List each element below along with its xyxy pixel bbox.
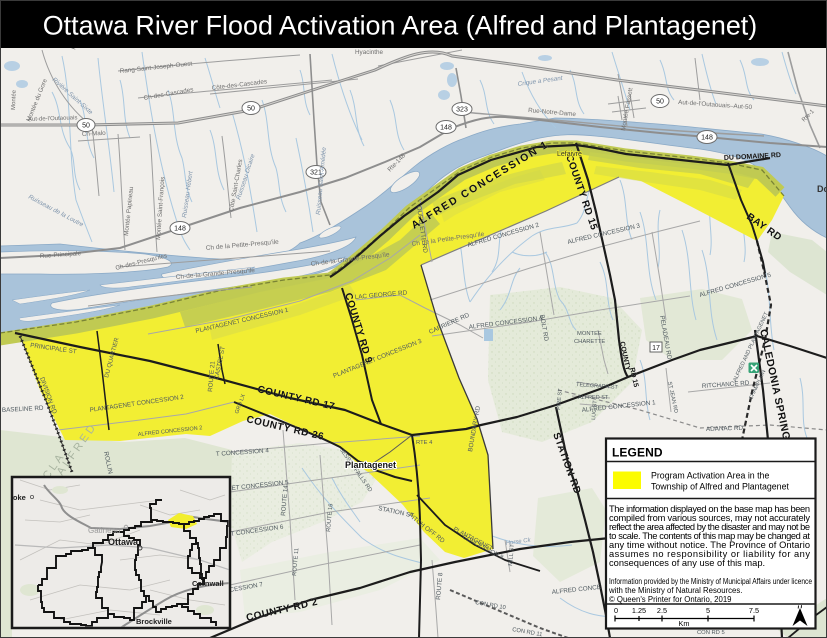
- svg-text:Brockville: Brockville: [136, 617, 172, 626]
- svg-text:Montée: Montée: [11, 89, 18, 110]
- svg-text:Ch-Malo: Ch-Malo: [82, 130, 107, 138]
- svg-text:Ottawa: Ottawa: [108, 537, 139, 547]
- svg-text:5: 5: [706, 606, 710, 615]
- svg-text:with the Ministry of Natural R: with the Ministry of Natural Resources.: [608, 586, 742, 595]
- svg-text:LEGEND: LEGEND: [612, 446, 663, 460]
- svg-text:148: 148: [174, 226, 186, 233]
- svg-text:consequences of any use of thi: consequences of any use of this map.: [609, 558, 765, 568]
- svg-text:ADANAC RD: ADANAC RD: [706, 425, 744, 433]
- svg-text:323: 323: [456, 107, 468, 114]
- svg-text:7.5: 7.5: [749, 606, 759, 615]
- svg-text:© Queen's Printer for Ontario,: © Queen's Printer for Ontario, 2019: [609, 595, 732, 604]
- svg-text:50: 50: [82, 123, 90, 130]
- svg-text:50: 50: [247, 106, 255, 113]
- svg-text:1.25: 1.25: [632, 606, 646, 615]
- svg-text:ALFRED ST: ALFRED ST: [578, 395, 609, 401]
- svg-text:CON RD 5: CON RD 5: [697, 630, 725, 636]
- svg-text:Township of Alfred and Plantag: Township of Alfred and Plantagenet: [651, 482, 789, 492]
- svg-text:Information provided by the Mi: Information provided by the Ministry of …: [609, 577, 812, 586]
- svg-text:Km: Km: [679, 619, 690, 628]
- svg-text:CHARETTE: CHARETTE: [574, 339, 605, 345]
- svg-text:MONTEE: MONTEE: [577, 331, 602, 337]
- svg-text:17: 17: [652, 345, 660, 352]
- svg-text:2.5: 2.5: [657, 606, 667, 615]
- svg-text:0: 0: [614, 606, 618, 615]
- svg-text:148: 148: [701, 135, 713, 142]
- svg-text:RTE 4: RTE 4: [416, 440, 433, 446]
- svg-text:Hyacinthe: Hyacinthe: [355, 49, 383, 56]
- svg-text:Lefaivre: Lefaivre: [557, 151, 582, 158]
- svg-text:50: 50: [656, 99, 664, 106]
- svg-text:Cornwall: Cornwall: [192, 579, 224, 588]
- svg-text:Plantagenet: Plantagenet: [345, 460, 396, 470]
- svg-text:148: 148: [440, 125, 452, 132]
- svg-text:Program Activation Area in the: Program Activation Area in the: [651, 471, 769, 481]
- svg-text:Gatineau: Gatineau: [88, 526, 120, 535]
- svg-text:Do: Do: [817, 184, 827, 194]
- svg-text:Ottawa River Flood Activation: Ottawa River Flood Activation Area (Alfr…: [43, 11, 757, 41]
